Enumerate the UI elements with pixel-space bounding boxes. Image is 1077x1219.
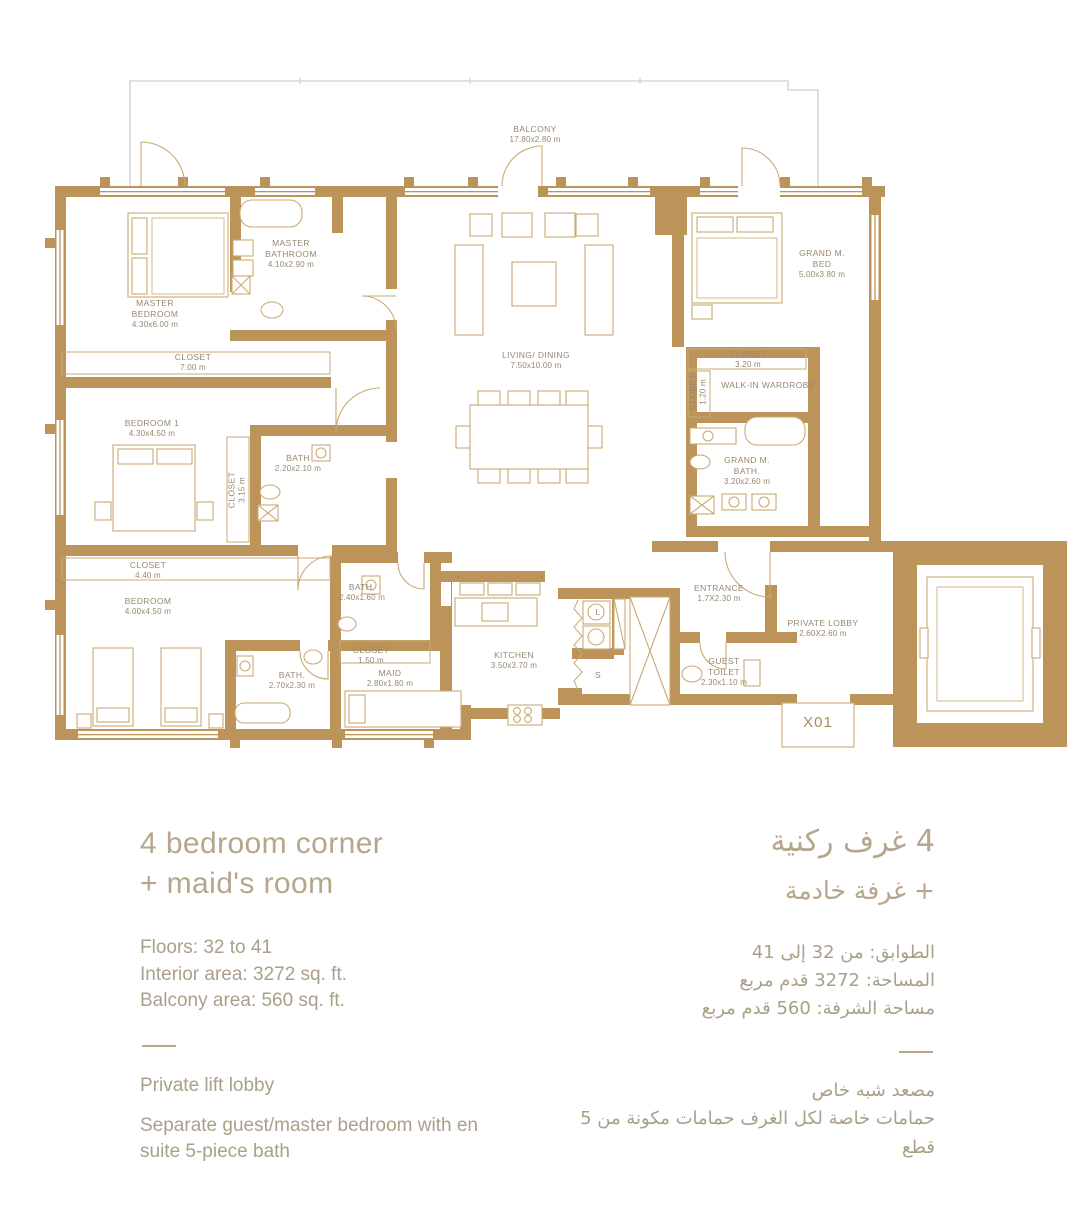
x01-label: X01 bbox=[803, 714, 833, 731]
room-name: BATHROOM bbox=[265, 249, 317, 260]
room-label-closet-bedroom: CLOSET4.40 m bbox=[130, 560, 166, 581]
room-name: GUEST bbox=[701, 656, 747, 667]
room-label-laundry: L bbox=[595, 607, 600, 618]
feature-ar-lift: مصعد شبه خاص bbox=[545, 1077, 935, 1106]
room-dimensions: 4.30x4.50 m bbox=[125, 429, 180, 439]
room-labels-layer: BALCONY17.80x2.80 mMASTERBATHROOM4.10x2.… bbox=[0, 0, 1077, 780]
room-dimensions: 1.50 m bbox=[353, 656, 389, 666]
room-label-bedroom: BEDROOM4.00x4.50 m bbox=[125, 596, 172, 617]
room-dimensions: 4.30x6.00 m bbox=[132, 320, 179, 330]
room-dimensions: 17.80x2.80 m bbox=[510, 135, 561, 145]
room-name: MASTER bbox=[265, 238, 317, 249]
room-name: BEDROOM bbox=[132, 309, 179, 320]
room-name: BED bbox=[799, 259, 845, 270]
room-dimensions: 3.50x3.70 m bbox=[491, 661, 537, 671]
title-en-line2: + maid's room bbox=[140, 864, 510, 904]
room-dimensions: 5.00x3.80 m bbox=[799, 270, 845, 280]
room-label-kitchen: KITCHEN3.50x3.70 m bbox=[491, 650, 537, 671]
room-name: BATH bbox=[275, 453, 321, 464]
feature-en-lobby: Private lift lobby bbox=[140, 1073, 510, 1098]
room-dimensions: 4.40 m bbox=[130, 571, 166, 581]
room-label-guest-toilet: GUESTTOILET2.30x1.10 m bbox=[701, 656, 747, 688]
room-name: CLOSET bbox=[353, 645, 389, 656]
room-dimensions: 4.00x4.50 m bbox=[125, 607, 172, 617]
divider-en bbox=[142, 1045, 176, 1047]
room-label-bath-2: BATH.2.40x1.60 m bbox=[339, 582, 385, 603]
room-dimensions: 2.70x2.30 m bbox=[269, 681, 315, 691]
room-name: KITCHEN bbox=[491, 650, 537, 661]
room-label-bath-3: BATH.2.70x2.30 m bbox=[269, 670, 315, 691]
room-dimensions: 1.20 m bbox=[698, 374, 708, 410]
title-ar-line1: 4 غرف ركنية bbox=[545, 824, 935, 860]
room-name: PRIVATE LOBBY bbox=[787, 618, 858, 629]
room-label-entrance: ENTRANCE1.7X2.30 m bbox=[694, 583, 744, 604]
room-dimensions: 2.20x2.10 m bbox=[275, 464, 321, 474]
room-name: WALK-IN WARDROBE bbox=[721, 380, 815, 391]
title-ar-line2: + غرفة خادمة bbox=[545, 876, 935, 905]
room-label-closet-master: CLOSET7.00 m bbox=[175, 352, 211, 373]
room-dimensions: 3.20x2.60 m bbox=[724, 477, 770, 487]
room-label-stairs: S bbox=[595, 670, 601, 681]
floors-ar: الطوابق: من 32 إلى 41 bbox=[545, 939, 935, 967]
room-label-closet-grand: CLOSET3.20 m bbox=[730, 349, 766, 370]
interior-area-ar: المساحة: 3272 قدم مربع bbox=[545, 967, 935, 995]
room-name: BATH. bbox=[339, 582, 385, 593]
title-en-line1: 4 bedroom corner bbox=[140, 824, 510, 864]
room-dimensions: 1.7X2.30 m bbox=[694, 594, 744, 604]
room-name: BEDROOM 1 bbox=[125, 418, 180, 429]
room-name: BALCONY bbox=[510, 124, 561, 135]
room-dimensions: 7.00 m bbox=[175, 363, 211, 373]
room-name: CLOSET bbox=[175, 352, 211, 363]
room-name: TOILET bbox=[701, 667, 747, 678]
room-dimensions: 2.80x1.80 m bbox=[367, 679, 413, 689]
room-dimensions: 2.40x1.60 m bbox=[339, 593, 385, 603]
room-label-walk-in-wardrobe: WALK-IN WARDROBE bbox=[721, 380, 815, 391]
balcony-area-en: Balcony area: 560 sq. ft. bbox=[140, 988, 510, 1015]
room-label-balcony: BALCONY17.80x2.80 m bbox=[510, 124, 561, 145]
room-dimensions: 3.15 m bbox=[237, 472, 247, 508]
room-name: S bbox=[595, 670, 601, 681]
room-name: CLOSET bbox=[130, 560, 166, 571]
room-name: GRAND M. bbox=[799, 248, 845, 259]
interior-area-en: Interior area: 3272 sq. ft. bbox=[140, 962, 510, 989]
balcony-area-ar: مساحة الشرفة: 560 قدم مربع bbox=[545, 995, 935, 1023]
room-label-bath-1: BATH2.20x2.10 m bbox=[275, 453, 321, 474]
room-name: ENTRANCE bbox=[694, 583, 744, 594]
room-name: CLOSET bbox=[687, 374, 698, 410]
room-name: CLOSET bbox=[226, 472, 237, 508]
room-name: BEDROOM bbox=[125, 596, 172, 607]
info-block-ar: 4 غرف ركنية + غرفة خادمة الطوابق: من 32 … bbox=[545, 824, 935, 1163]
room-name: CLOSET bbox=[730, 349, 766, 360]
room-label-closet-grand-vertical: CLOSET1.20 m bbox=[687, 374, 708, 410]
room-label-closet-maid: CLOSET1.50 m bbox=[353, 645, 389, 666]
room-dimensions: 4.10x2.90 m bbox=[265, 260, 317, 270]
room-dimensions: 7.50x10.00 m bbox=[502, 361, 570, 371]
feature-ar-baths: حمامات خاصة لكل الغرف حمامات مكونة من 5 … bbox=[545, 1105, 935, 1163]
room-label-grand-m-bath: GRAND M.BATH.3.20x2.60 m bbox=[724, 455, 770, 487]
room-label-private-lobby: PRIVATE LOBBY2.60X2.60 m bbox=[787, 618, 858, 639]
room-dimensions: 2.60X2.60 m bbox=[787, 629, 858, 639]
room-name: BATH. bbox=[269, 670, 315, 681]
room-name: BATH. bbox=[724, 466, 770, 477]
room-dimensions: 3.20 m bbox=[730, 360, 766, 370]
room-label-bedroom-1: BEDROOM 14.30x4.50 m bbox=[125, 418, 180, 439]
feature-en-ensuite: Separate guest/master bedroom with en su… bbox=[140, 1113, 510, 1164]
room-label-master-bathroom: MASTERBATHROOM4.10x2.90 m bbox=[265, 238, 317, 270]
room-dimensions: 2.30x1.10 m bbox=[701, 678, 747, 688]
room-label-maid: MAID2.80x1.80 m bbox=[367, 668, 413, 689]
info-block-en: 4 bedroom corner + maid's room Floors: 3… bbox=[140, 824, 510, 1164]
room-label-grand-m-bed: GRAND M.BED5.00x3.80 m bbox=[799, 248, 845, 280]
room-name: L bbox=[595, 607, 600, 618]
room-name: MASTER bbox=[132, 298, 179, 309]
room-name: MAID bbox=[367, 668, 413, 679]
room-label-closet-bed1-vertical: CLOSET3.15 m bbox=[226, 472, 247, 508]
floors-en: Floors: 32 to 41 bbox=[140, 935, 510, 962]
floor-plan-page: BALCONY17.80x2.80 mMASTERBATHROOM4.10x2.… bbox=[0, 0, 1077, 1219]
room-label-master-bedroom: MASTERBEDROOM4.30x6.00 m bbox=[132, 298, 179, 330]
room-name: GRAND M. bbox=[724, 455, 770, 466]
divider-ar bbox=[899, 1051, 933, 1053]
room-name: LIVING/ DINING bbox=[502, 350, 570, 361]
room-label-living-dining: LIVING/ DINING7.50x10.00 m bbox=[502, 350, 570, 371]
